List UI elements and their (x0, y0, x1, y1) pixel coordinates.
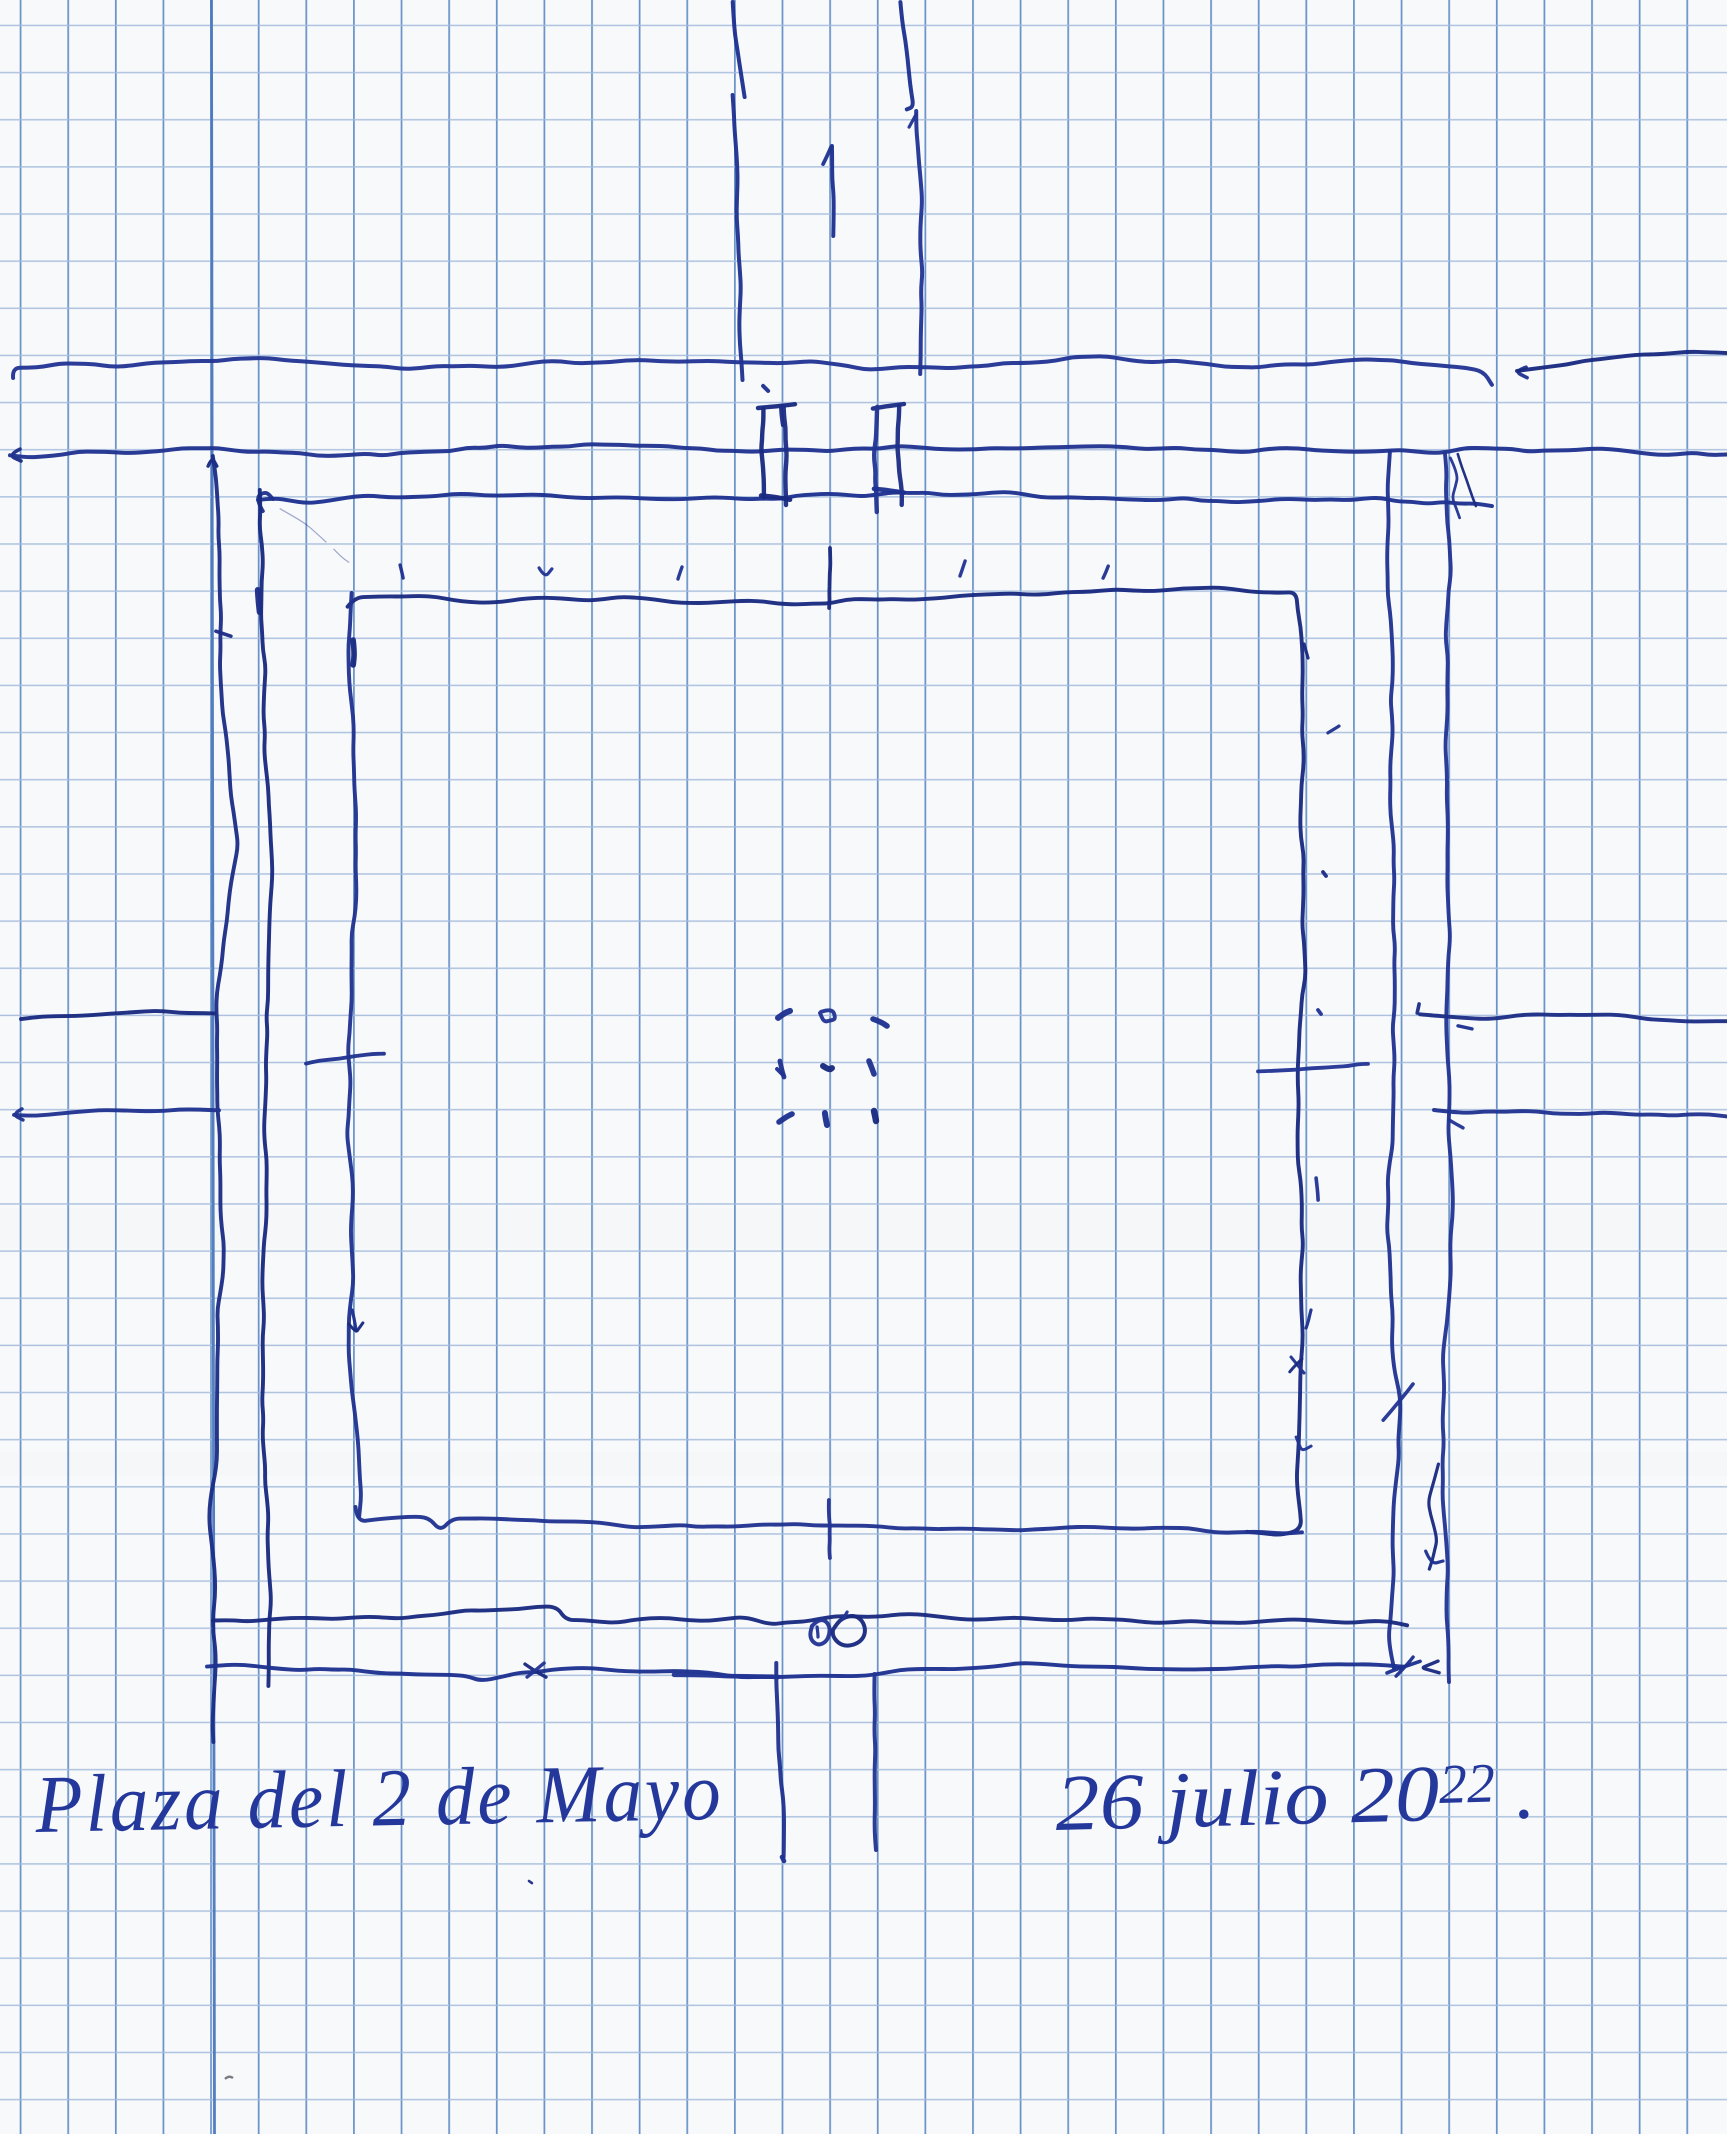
svg-text:Plaza del 2 de Mayo: Plaza del 2 de Mayo (34, 1746, 725, 1850)
